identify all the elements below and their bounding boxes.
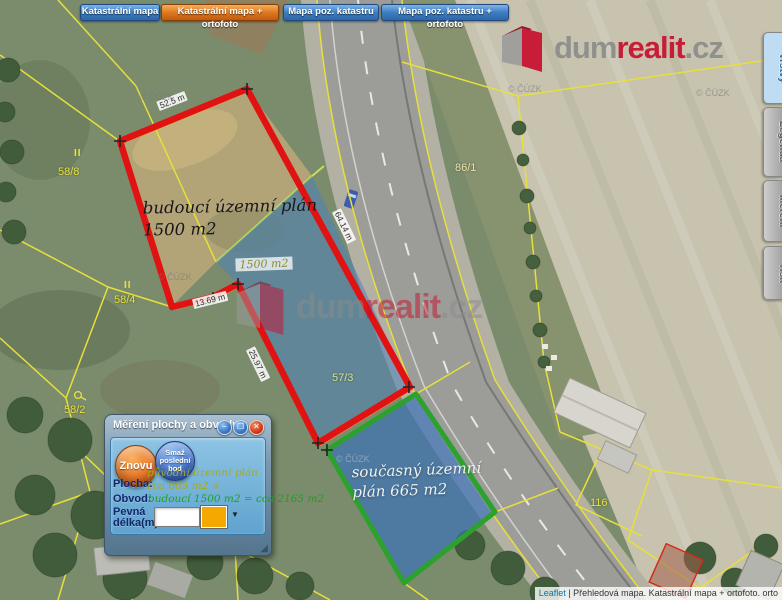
perimeter-field-label: Obvod: — [113, 493, 152, 505]
side-tab-vrstvy[interactable]: Vrstvy — [763, 32, 782, 104]
color-swatch-frame[interactable] — [200, 505, 228, 529]
layer-button-mapa-poz-katastru[interactable]: Mapa poz. katastru — [283, 4, 379, 21]
attribution-text: | Přehledová mapa. Katastrální mapa + or… — [566, 588, 778, 598]
layer-button-mapa-poz-katastru-ortofoto[interactable]: Mapa poz. katastru + ortofoto — [381, 4, 509, 21]
restore-button[interactable]: ❐ — [233, 420, 248, 435]
note-area-665: cca 665 m2 + — [147, 480, 221, 492]
layer-button-katastralni-mapa[interactable]: Katastrální mapa — [80, 4, 160, 21]
close-button[interactable]: ✕ — [249, 420, 264, 435]
side-tab-mereni[interactable]: Měření — [763, 180, 782, 242]
layer-button-katastralni-mapa-ortofoto[interactable]: Katastrální mapa + ortofoto — [161, 4, 279, 21]
side-tab-legenda[interactable]: Legenda — [763, 107, 782, 177]
note-original-plan: původní územní plán — [147, 467, 258, 479]
parcel-symbol-icon — [72, 389, 88, 402]
side-tab-tisk[interactable]: Tisk — [763, 246, 782, 300]
map-viewport[interactable]: 52.5 m 64.14 m 25.97 m 13.69 m 1500 m2 5… — [0, 0, 782, 600]
dropdown-arrow-icon[interactable]: ▼ — [231, 510, 239, 519]
note-total-2165: budoucí 1500 m2 = cca 2165 m2 — [148, 493, 324, 505]
minimize-button[interactable]: − — [217, 420, 232, 435]
measure-dialog[interactable]: Měření plochy a obvodu − ❐ ✕ Znovu Smaž … — [104, 414, 272, 556]
attribution-bar: Leaflet | Přehledová mapa. Katastrální m… — [535, 587, 782, 600]
fixed-length-input[interactable] — [154, 507, 200, 527]
leaflet-link[interactable]: Leaflet — [539, 588, 566, 598]
resize-grip[interactable]: ◢ — [260, 543, 268, 554]
color-swatch[interactable] — [202, 507, 226, 527]
